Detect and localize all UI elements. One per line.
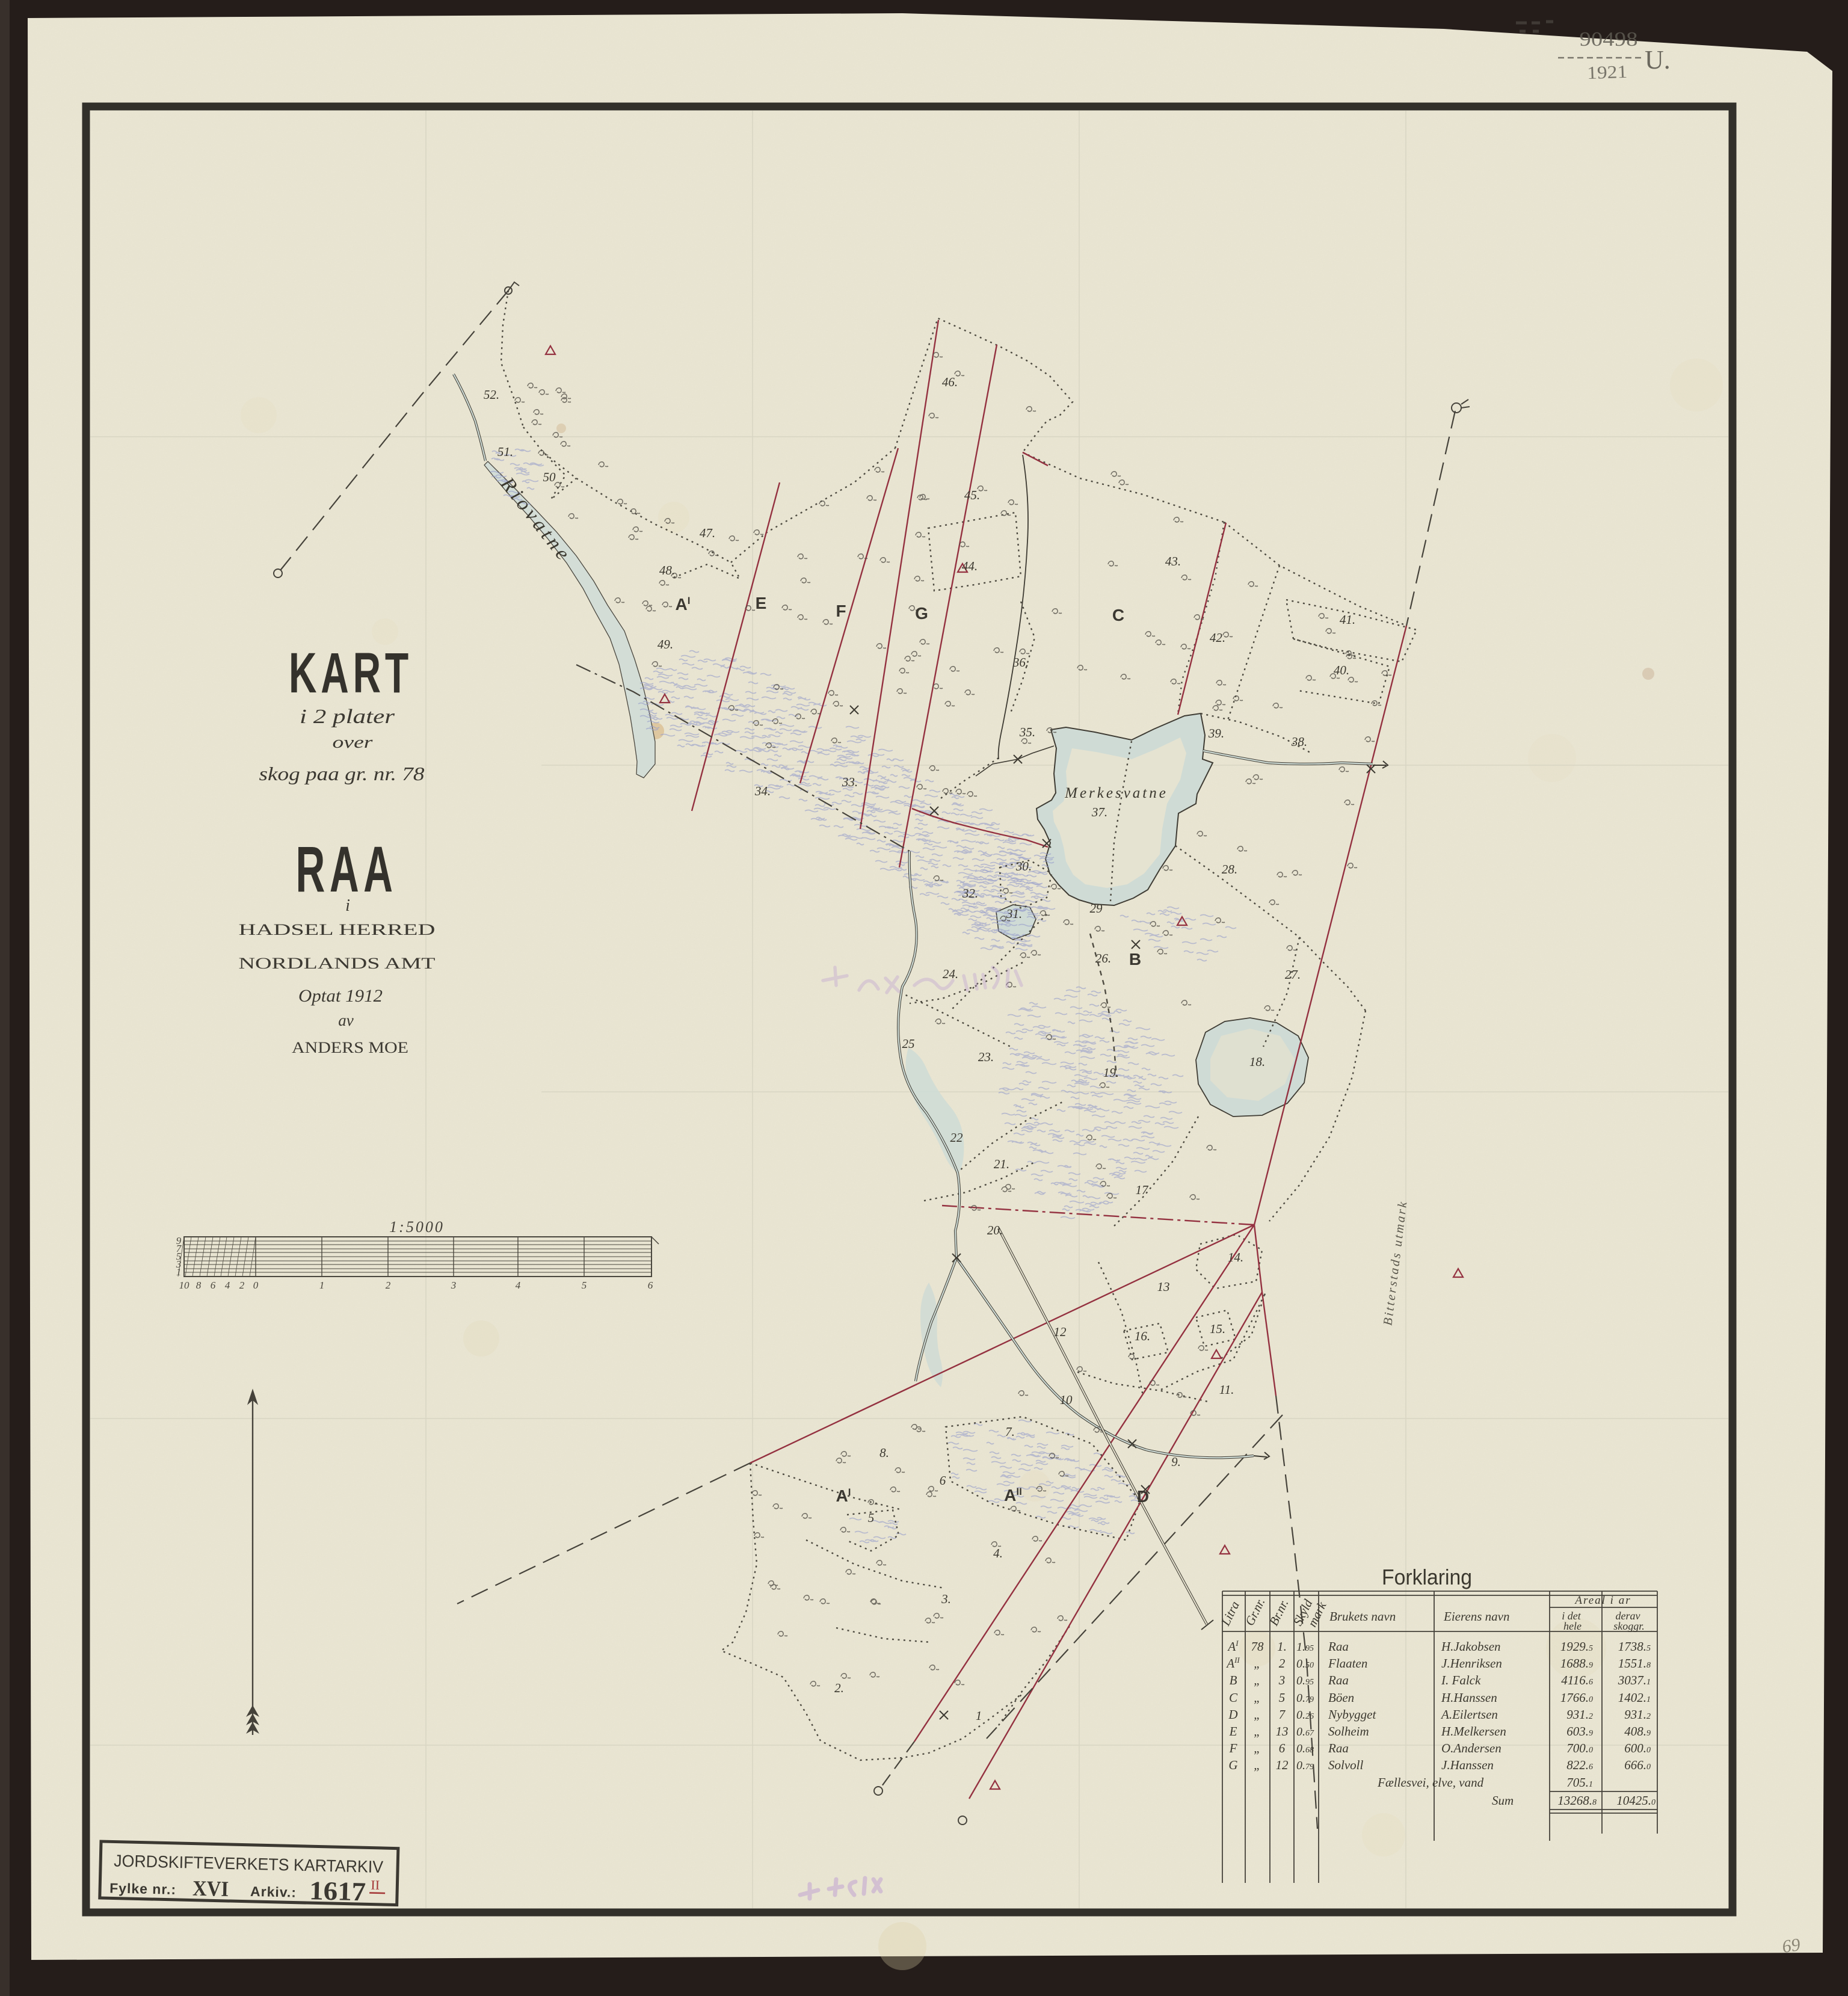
svg-text:over: over (333, 733, 373, 752)
svg-text:51.: 51. (497, 445, 513, 459)
svg-text:Fællesvei, elve, vand: Fællesvei, elve, vand (1377, 1775, 1484, 1790)
svg-text:H.Hanssen: H.Hanssen (1441, 1690, 1497, 1705)
svg-text:4.: 4. (993, 1546, 1003, 1560)
svg-text:J.Hanssen: J.Hanssen (1441, 1758, 1494, 1772)
svg-text:48.: 48. (659, 563, 675, 578)
svg-text:34.: 34. (754, 784, 771, 798)
svg-text:Fylke nr.:: Fylke nr.: (109, 1880, 177, 1897)
svg-text:F: F (1229, 1741, 1237, 1755)
svg-text:13: 13 (1157, 1280, 1170, 1294)
svg-text:I. Falck: I. Falck (1441, 1673, 1481, 1687)
svg-text:28.: 28. (1222, 862, 1237, 876)
svg-text:47.: 47. (700, 526, 715, 540)
svg-text:Optat 1912: Optat 1912 (298, 986, 383, 1006)
svg-text:90498: 90498 (1580, 28, 1638, 51)
svg-text:5: 5 (582, 1280, 587, 1291)
svg-text:5: 5 (868, 1511, 875, 1525)
svg-text:20.: 20. (987, 1223, 1003, 1237)
svg-text:8: 8 (196, 1280, 202, 1291)
svg-text:1: 1 (319, 1280, 325, 1291)
svg-text:KART: KART (289, 641, 413, 705)
svg-text:D: D (1137, 1487, 1149, 1506)
svg-text:27.: 27. (1285, 967, 1301, 982)
svg-text:43.: 43. (1165, 554, 1181, 568)
svg-text:H.Jakobsen: H.Jakobsen (1441, 1639, 1501, 1654)
svg-text:hele: hele (1563, 1620, 1582, 1632)
svg-text:4: 4 (225, 1280, 230, 1291)
svg-text:„: „ (1254, 1690, 1261, 1705)
svg-text:4116.6: 4116.6 (1561, 1673, 1593, 1687)
svg-text:21.: 21. (994, 1157, 1009, 1171)
svg-text:4: 4 (516, 1280, 521, 1291)
svg-text:2: 2 (386, 1280, 391, 1291)
svg-text:15.: 15. (1210, 1322, 1225, 1336)
svg-text:69: 69 (1781, 1935, 1801, 1957)
svg-text:10: 10 (179, 1280, 190, 1291)
svg-text:J.Henriksen: J.Henriksen (1441, 1656, 1502, 1671)
svg-text:29: 29 (1090, 901, 1103, 916)
svg-text:39.: 39. (1208, 726, 1224, 741)
svg-text:i: i (345, 896, 350, 915)
svg-text:16.: 16. (1135, 1329, 1150, 1343)
svg-text:25: 25 (902, 1037, 915, 1051)
svg-text:10: 10 (1060, 1393, 1073, 1407)
svg-text:9.: 9. (1171, 1455, 1181, 1469)
svg-text:22: 22 (950, 1130, 964, 1145)
svg-text:7.: 7. (1005, 1425, 1015, 1439)
svg-text:A.Eilertsen: A.Eilertsen (1440, 1707, 1498, 1722)
svg-text:14.: 14. (1228, 1250, 1243, 1264)
svg-text:5: 5 (1279, 1690, 1286, 1705)
svg-text:Raa: Raa (1328, 1673, 1349, 1687)
svg-text:1921: 1921 (1587, 62, 1628, 83)
svg-text:G: G (1228, 1758, 1237, 1772)
svg-text:40.: 40. (1334, 663, 1349, 677)
svg-text:13268.8: 13268.8 (1557, 1793, 1597, 1808)
svg-text:3: 3 (451, 1280, 457, 1291)
svg-text:„: „ (1254, 1707, 1261, 1722)
svg-text:6: 6 (648, 1280, 653, 1291)
svg-text:Arkiv.:: Arkiv.: (250, 1884, 297, 1900)
svg-text:D: D (1228, 1707, 1237, 1722)
svg-text:Solheim: Solheim (1328, 1724, 1369, 1739)
svg-text:78: 78 (1251, 1639, 1264, 1654)
svg-text:F: F (836, 602, 846, 620)
svg-text:37.: 37. (1091, 805, 1107, 819)
svg-text:52.: 52. (484, 387, 499, 402)
svg-text:32.: 32. (962, 886, 978, 901)
svg-text:10425.0: 10425.0 (1616, 1793, 1655, 1808)
svg-text:3037.1: 3037.1 (1618, 1673, 1651, 1687)
svg-text:Merkesvatne: Merkesvatne (1064, 785, 1168, 801)
svg-text:1:5000: 1:5000 (389, 1218, 445, 1236)
svg-text:46.: 46. (942, 375, 958, 389)
svg-text:13: 13 (1276, 1724, 1289, 1739)
svg-text:Areal i ar: Areal i ar (1574, 1594, 1631, 1607)
svg-text:B: B (1129, 950, 1141, 969)
svg-text:1688.9: 1688.9 (1560, 1656, 1593, 1671)
svg-text:„: „ (1254, 1758, 1261, 1772)
svg-text:„: „ (1254, 1656, 1261, 1671)
svg-text:44.: 44. (962, 559, 978, 573)
svg-text:av: av (338, 1011, 354, 1029)
svg-text:49.: 49. (658, 637, 673, 651)
svg-text:30.: 30. (1015, 859, 1032, 873)
svg-text:0: 0 (253, 1280, 259, 1291)
svg-text:12: 12 (1276, 1758, 1289, 1772)
svg-text:skoggr.: skoggr. (1613, 1620, 1645, 1632)
svg-text:Brukets navn: Brukets navn (1329, 1609, 1396, 1624)
svg-text:11.: 11. (1219, 1382, 1234, 1397)
svg-text:26.: 26. (1095, 951, 1111, 966)
svg-text:1: 1 (176, 1266, 182, 1278)
svg-text:23.: 23. (978, 1050, 994, 1064)
svg-text:Nybygget: Nybygget (1328, 1707, 1376, 1722)
svg-text:1929.5: 1929.5 (1560, 1639, 1593, 1654)
svg-text:35.: 35. (1019, 725, 1035, 739)
svg-text:skog paa gr. nr. 78: skog paa gr. nr. 78 (259, 763, 425, 784)
svg-text:G: G (915, 604, 928, 623)
svg-text:E: E (1229, 1724, 1237, 1739)
svg-text:Raa: Raa (1328, 1741, 1349, 1755)
svg-text:3: 3 (1278, 1673, 1286, 1687)
svg-text:18.: 18. (1249, 1055, 1265, 1069)
svg-text:E: E (756, 594, 767, 612)
svg-text:H.Melkersen: H.Melkersen (1441, 1724, 1506, 1739)
svg-text:Solvoll: Solvoll (1328, 1758, 1363, 1772)
svg-text:„: „ (1254, 1724, 1261, 1739)
svg-text:17: 17 (1136, 1183, 1150, 1197)
svg-text:RAA: RAA (296, 833, 398, 905)
svg-text:2.: 2. (834, 1681, 844, 1695)
svg-text:Raa: Raa (1328, 1639, 1349, 1654)
svg-text:U.: U. (1645, 45, 1671, 75)
svg-text:B: B (1230, 1673, 1237, 1687)
svg-text:2: 2 (1279, 1656, 1286, 1671)
svg-text:Flaaten: Flaaten (1328, 1656, 1367, 1671)
svg-text:42.: 42. (1210, 630, 1225, 645)
svg-text:12: 12 (1054, 1325, 1067, 1339)
svg-text:1551.8: 1551.8 (1618, 1656, 1651, 1671)
svg-text:„: „ (1254, 1741, 1261, 1755)
svg-text:1: 1 (976, 1708, 982, 1723)
svg-text:2: 2 (239, 1280, 245, 1291)
svg-text:33.: 33. (842, 775, 858, 789)
svg-text:Forklaring: Forklaring (1382, 1565, 1472, 1589)
svg-text:36.: 36. (1012, 655, 1029, 670)
svg-text:1766.0: 1766.0 (1560, 1690, 1593, 1705)
svg-text:50: 50 (543, 470, 556, 484)
svg-text:1.: 1. (1277, 1639, 1287, 1654)
svg-text:31.: 31. (1006, 907, 1022, 921)
svg-text:C: C (1112, 606, 1124, 624)
svg-text:6: 6 (1279, 1741, 1286, 1755)
svg-text:1402.1: 1402.1 (1618, 1690, 1651, 1705)
svg-text:6: 6 (940, 1473, 946, 1488)
svg-text:O.Andersen: O.Andersen (1441, 1741, 1501, 1755)
svg-text:1617: 1617 (309, 1876, 366, 1906)
svg-text:6: 6 (211, 1280, 216, 1291)
svg-text:Sum: Sum (1492, 1793, 1514, 1808)
svg-text:45.: 45. (964, 488, 980, 502)
svg-text:C: C (1229, 1690, 1238, 1705)
svg-text:Böen: Böen (1328, 1690, 1354, 1705)
svg-text:7: 7 (1279, 1707, 1286, 1722)
svg-text:XVI: XVI (192, 1876, 229, 1901)
svg-text:3.: 3. (941, 1592, 951, 1606)
svg-text:i 2 plater: i 2 plater (300, 706, 395, 728)
svg-text:Eierens navn: Eierens navn (1443, 1609, 1509, 1624)
svg-text:HADSEL HERRED: HADSEL HERRED (239, 921, 436, 938)
svg-text:„: „ (1254, 1673, 1261, 1687)
svg-text:38.: 38. (1291, 735, 1307, 749)
svg-text:II: II (371, 1877, 380, 1893)
svg-text:19.: 19. (1103, 1065, 1119, 1080)
svg-text:24.: 24. (943, 967, 958, 981)
svg-text:ANDERS MOE: ANDERS MOE (292, 1039, 408, 1056)
svg-text:1738.5: 1738.5 (1618, 1639, 1651, 1654)
svg-text:NORDLANDS AMT: NORDLANDS AMT (239, 955, 436, 972)
svg-text:41.: 41. (1340, 612, 1355, 627)
svg-text:8.: 8. (879, 1446, 889, 1460)
